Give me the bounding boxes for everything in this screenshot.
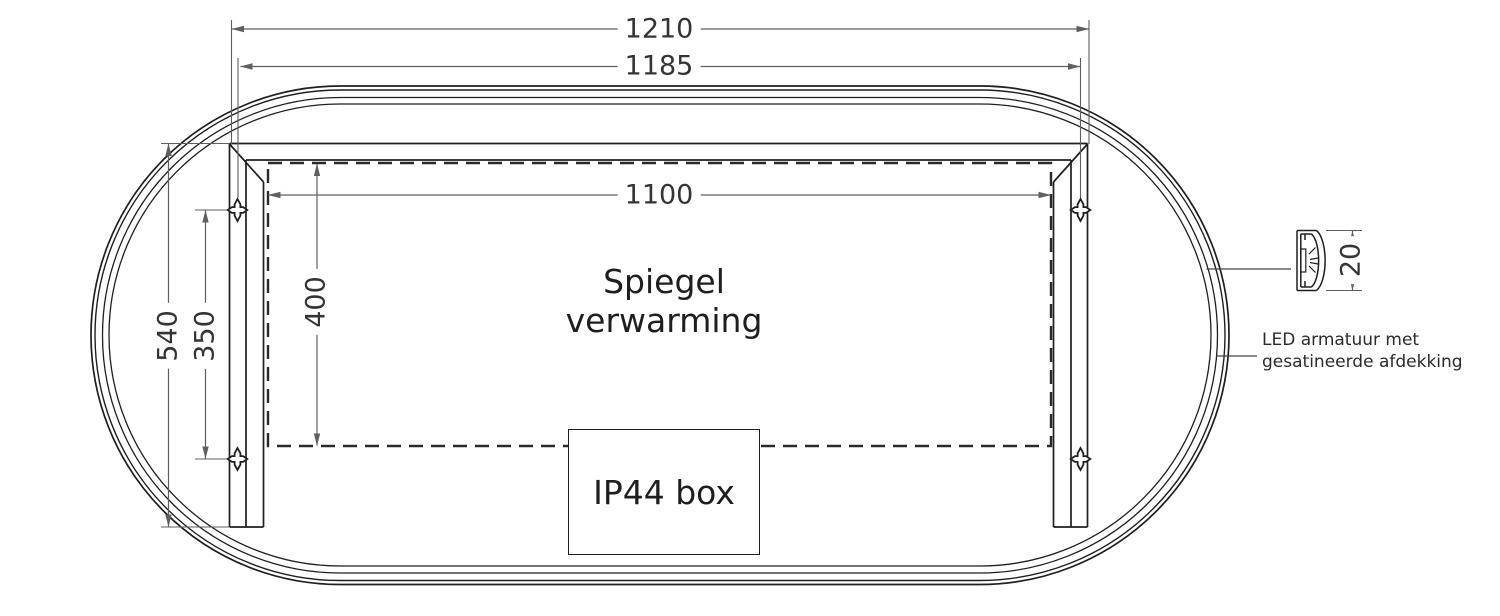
dim-mounting-hole-width: 1185	[618, 51, 701, 82]
dim-heating-width: 1100	[618, 180, 701, 211]
heating-foil-label-line2: verwarming	[566, 301, 763, 340]
led-armature-note-line2: gesatineerde afdekking	[1262, 351, 1463, 373]
led-armature-note-line1: LED armatuur met	[1262, 329, 1463, 351]
dim-bracket-height: 540	[153, 303, 184, 369]
heating-foil-label-line1: Spiegel	[566, 262, 763, 301]
led-light-rays-icon	[1309, 248, 1318, 273]
dim-heating-height: 400	[301, 269, 332, 335]
led-armature-note: LED armatuur met gesatineerde afdekking	[1262, 329, 1463, 373]
dim-mounting-hole-height: 350	[190, 303, 221, 369]
dim-led-profile-depth: 20	[1336, 236, 1367, 284]
heating-foil-label: Spiegel verwarming	[566, 262, 763, 340]
ip44-box-label: IP44 box	[593, 473, 735, 512]
technical-drawing-canvas: 1210 1185 1100 540 350 400 20 Spiegel ve…	[0, 0, 1500, 616]
led-profile-section	[1297, 231, 1325, 291]
ip44-junction-box: IP44 box	[568, 429, 760, 555]
dim-overall-width: 1210	[618, 14, 701, 45]
